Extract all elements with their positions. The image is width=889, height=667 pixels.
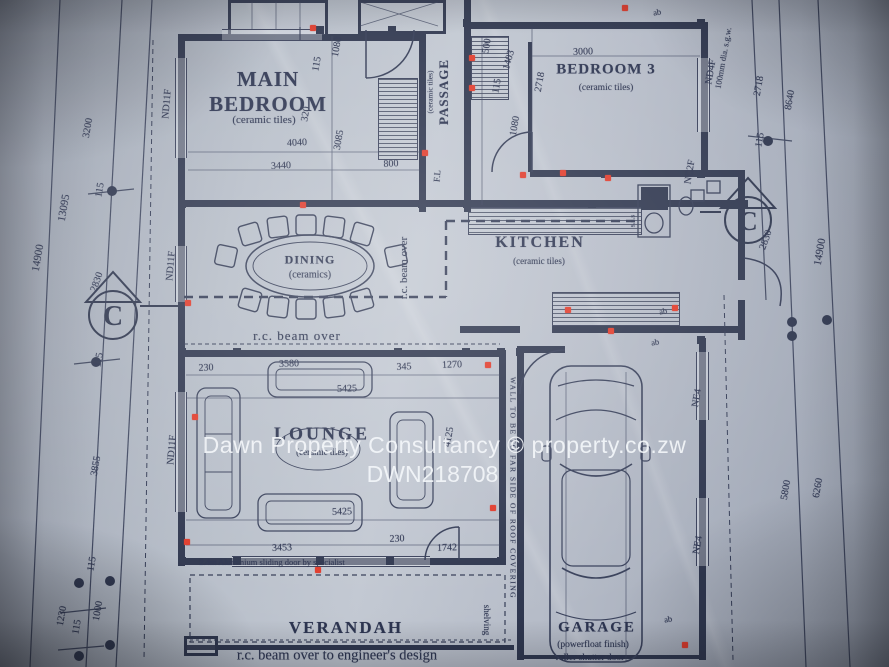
sink-bowl — [645, 213, 663, 233]
red-marker-dot — [192, 414, 198, 420]
room-finish-lounge: (ceramic tiles) — [296, 447, 348, 457]
door-swing — [520, 350, 565, 394]
room-label-main-bedroom: MAIN BEDROOM — [183, 67, 353, 117]
room-label-lounge: LOUNGE — [274, 424, 370, 445]
red-marker-dot — [608, 328, 614, 334]
dimension-label: 3000 — [573, 46, 593, 58]
red-marker-dot — [185, 300, 191, 306]
wc-cistern — [691, 190, 704, 201]
sink-unit — [638, 185, 670, 237]
red-marker-dot — [672, 305, 678, 311]
room-finish-bedroom3: (ceramic tiles) — [579, 83, 634, 93]
red-marker-dot — [469, 55, 475, 61]
annotation-tag: ab — [658, 305, 668, 316]
room-label-bedroom3: BEDROOM 3 — [556, 62, 655, 79]
floor-plan-photo: C C — [0, 0, 889, 667]
dimension-rail — [818, 0, 850, 667]
note-beam-over-vertical: r.c. beam over — [398, 237, 410, 299]
dimension-label: 5425 — [332, 506, 352, 518]
red-marker-dot — [422, 150, 428, 156]
room-finish-dining: (ceramics) — [289, 270, 331, 281]
annotation-tag: ab — [650, 336, 660, 347]
room-finish-passage: (ceramic tiles) — [426, 70, 435, 113]
room-label-garage: GARAGE — [558, 620, 636, 637]
dimension-rail — [752, 0, 766, 300]
dimension-label: 4040 — [287, 137, 308, 149]
room-finish-garage: (powerfloat finish) — [557, 640, 629, 650]
red-marker-dot — [310, 25, 316, 31]
red-marker-dot — [184, 539, 190, 545]
roof-overhang-dashed — [724, 295, 733, 660]
red-marker-dot — [605, 175, 611, 181]
dimension-label: 800 — [383, 158, 399, 170]
note-sink: s.s.s — [628, 215, 637, 228]
room-label-kitchen: KITCHEN — [495, 234, 585, 252]
dimension-label: 345 — [396, 361, 411, 373]
dimension-label: 1742 — [437, 542, 457, 554]
dimension-rail — [30, 0, 60, 667]
section-letter: C — [738, 206, 758, 236]
dimension-label: 230 — [389, 533, 404, 545]
red-marker-dot — [485, 362, 491, 368]
dimension-label: 1270 — [442, 359, 462, 371]
note-floor-level: F.L — [431, 170, 442, 183]
red-marker-dot — [315, 567, 321, 573]
red-marker-dot — [622, 5, 628, 11]
section-letter: C — [103, 301, 123, 332]
red-marker-dot — [565, 307, 571, 313]
dimension-label: 230 — [198, 362, 213, 374]
dimension-label: 3580 — [279, 358, 299, 370]
garage-door-note: roller shutter door — [556, 653, 625, 663]
dimension-rail — [116, 0, 152, 667]
red-marker-dot — [560, 170, 566, 176]
room-finish-kitchen: (ceramic tiles) — [513, 256, 565, 266]
note-beam-over: r.c. beam over — [253, 328, 341, 344]
door-swing — [744, 258, 781, 306]
dimension-label: 5425 — [337, 383, 357, 395]
car-top-view — [542, 366, 650, 662]
dimension-label: 3453 — [272, 542, 292, 554]
note-wall-roof: WALL TO BE TO FAR SIDE OF ROOF COVERING — [509, 377, 518, 599]
red-marker-dot — [682, 642, 688, 648]
room-label-dining: DINING — [285, 253, 336, 268]
annotation-tag: ab — [663, 613, 673, 624]
annotation-tag: ab — [652, 6, 662, 17]
room-label-passage: PASSAGE — [436, 59, 452, 125]
door-swing — [492, 132, 532, 172]
red-marker-dot — [520, 172, 526, 178]
note-sliding-door: 2.4m Aluminium sliding door by specialis… — [199, 557, 344, 567]
dimension-label: 3440 — [271, 160, 292, 172]
room-label-verandah: VERANDAH — [289, 618, 403, 638]
gully-box — [707, 181, 720, 193]
red-marker-dot — [469, 85, 475, 91]
note-shelving: shelving — [482, 605, 492, 636]
room-finish-main-bedroom: (ceramic tiles) — [232, 114, 295, 126]
red-marker-dot — [490, 505, 496, 511]
red-marker-dot — [300, 202, 306, 208]
door-swing — [366, 30, 414, 78]
note-beam-engineer: r.c. beam over to engineer's design — [237, 648, 437, 665]
